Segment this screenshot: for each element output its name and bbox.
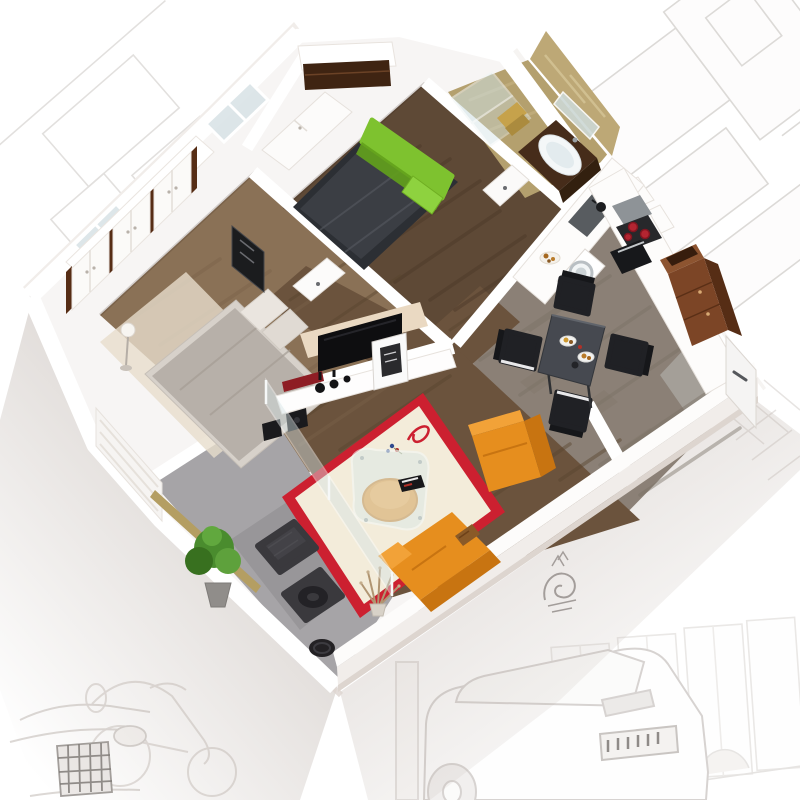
coffee-table-glass (352, 449, 429, 530)
chair-east (607, 336, 646, 374)
chair-north (556, 278, 593, 314)
glass-tabletop (352, 449, 429, 530)
faucet (573, 138, 578, 143)
floor-plan-page (0, 0, 800, 800)
branch-vase (370, 604, 386, 616)
floor-plan-render (0, 0, 800, 800)
wall-top (296, 30, 400, 36)
cup (572, 362, 579, 369)
closet-door-handle (298, 126, 301, 129)
balcony-side-table (309, 639, 335, 657)
pastry-plate (540, 252, 560, 264)
leaning-artwork (372, 333, 408, 390)
